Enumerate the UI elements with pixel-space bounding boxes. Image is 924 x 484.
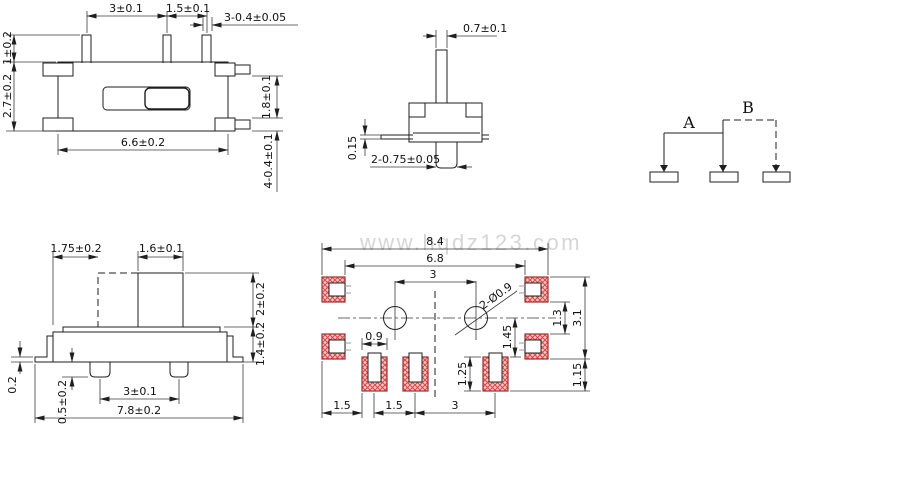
dim-knob-height: 2±0.2 bbox=[254, 282, 267, 316]
watermark: www.hqdz123.com bbox=[359, 230, 582, 255]
pole-a-label: A bbox=[682, 113, 695, 132]
dim-travel: 1.75±0.2 bbox=[50, 242, 101, 255]
terminal-1 bbox=[650, 172, 678, 182]
front-body-outline bbox=[53, 332, 227, 362]
top-view: 3±0.1 1.5±0.1 3-0.4±0.05 1±0.2 2.7±0.2 1… bbox=[1, 2, 298, 192]
pcb-land-pattern: 8.4 6.8 3 2-Ø0.9 1.3 3.1 1.15 1.45 1.25 … bbox=[322, 235, 590, 418]
dim-hole-pitch: 3 bbox=[430, 268, 437, 281]
dim-center-to-pad: 1.45 bbox=[501, 325, 514, 350]
dim-left-gap: 1.5 bbox=[333, 399, 351, 412]
dim-body-depth: 2.7±0.2 bbox=[1, 74, 14, 118]
dim-body-width: 6.6±0.2 bbox=[121, 136, 165, 149]
pin-3 bbox=[202, 35, 211, 63]
dim-overall-width: 7.8±0.2 bbox=[117, 404, 161, 417]
side-body-outline bbox=[409, 103, 482, 142]
dim-pin-pitch-b: 1.5±0.1 bbox=[166, 2, 210, 15]
dim-foot-width: 2-0.75±0.05 bbox=[371, 153, 440, 166]
tab-right-top bbox=[215, 63, 235, 76]
dim-pin-length: 1±0.2 bbox=[1, 31, 14, 65]
pole-b-label: B bbox=[742, 98, 754, 117]
tab-left-top bbox=[43, 63, 73, 76]
foot-1 bbox=[90, 362, 110, 377]
flange-right bbox=[227, 336, 243, 362]
dim-pad-width: 0.9 bbox=[365, 330, 383, 343]
terminal-2 bbox=[710, 172, 738, 182]
dim-foot-pitch: 3±0.1 bbox=[123, 385, 157, 398]
dim-pin-width: 3-0.4±0.05 bbox=[224, 11, 286, 24]
dim-pcb-overall-width: 8.4 bbox=[426, 235, 444, 248]
dim-foot-height: 0.5±0.2 bbox=[56, 380, 69, 424]
tab-right-bottom bbox=[215, 118, 235, 131]
actuator-stem bbox=[436, 50, 447, 103]
pin-1 bbox=[82, 35, 91, 63]
dim-lead-thickness: 0.15 bbox=[346, 136, 359, 161]
tab-left-bottom bbox=[43, 118, 73, 131]
dim-pcb-overall-height: 3.1 bbox=[571, 309, 584, 327]
side-view: 0.7±0.1 0.15 2-0.75±0.05 bbox=[346, 22, 507, 168]
terminal-3 bbox=[763, 172, 790, 182]
front-knob bbox=[138, 273, 183, 327]
knob-alt-position bbox=[98, 273, 138, 327]
flange-left bbox=[35, 336, 53, 362]
dim-stem-width: 0.7±0.1 bbox=[463, 22, 507, 35]
dim-tab-gap: 1.8±0.1 bbox=[260, 75, 273, 119]
front-top-plate bbox=[63, 327, 220, 332]
dim-knob-width: 1.6±0.1 bbox=[139, 242, 183, 255]
circuit-schematic: A B bbox=[650, 98, 790, 182]
side-view-dimensions bbox=[360, 30, 497, 167]
dim-pad-gap: 1.5 bbox=[385, 399, 403, 412]
dim-tab-thickness: 4-0.4±0.1 bbox=[262, 133, 275, 188]
dim-bottom-offset: 1.15 bbox=[571, 363, 584, 388]
dim-pad-height: 1.25 bbox=[456, 362, 469, 387]
switch-body-outline bbox=[58, 62, 228, 131]
dim-corner-gap: 1.3 bbox=[551, 309, 564, 327]
foot-2 bbox=[170, 362, 188, 377]
dim-pad-pitch: 3 bbox=[452, 399, 459, 412]
dim-pin-pitch-a: 3±0.1 bbox=[109, 2, 143, 15]
dim-pad-span: 6.8 bbox=[426, 252, 444, 265]
pcb-dimensions bbox=[322, 243, 590, 418]
front-view: 1.75±0.2 1.6±0.1 2±0.2 1.4±0.2 0.2 0.5±0… bbox=[6, 242, 267, 424]
dim-flange-thickness: 0.2 bbox=[6, 376, 19, 394]
engineering-drawing: www.hqdz123.com bbox=[0, 0, 924, 484]
dim-body-height: 1.4±0.2 bbox=[254, 322, 267, 366]
pin-2 bbox=[163, 35, 171, 63]
